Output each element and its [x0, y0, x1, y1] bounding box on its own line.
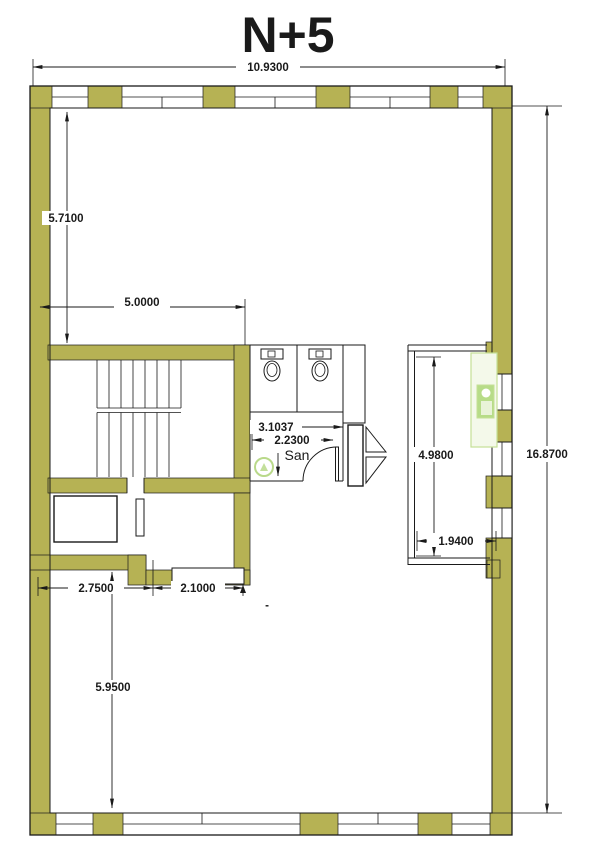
toilet-icon: [309, 349, 331, 381]
staircase: [97, 360, 181, 477]
dim-overall-height: 16.8700: [526, 449, 568, 461]
dim-lower-left-width: 2.7500: [78, 583, 113, 595]
door-leaf-panel: [136, 499, 144, 536]
floor-plan-page: N+5 10.9300 5.7100 5.0000 3.1037 2.2300 …: [0, 0, 607, 850]
stray-dash: -: [265, 600, 269, 612]
dim-upper-left-height: 5.7100: [48, 213, 83, 225]
duct-arrow-symbol: [348, 425, 386, 486]
dim-lower-mid-width: 2.1000: [180, 583, 215, 595]
dim-overall-width: 10.9300: [247, 62, 289, 74]
dim-stair-room-width: 5.0000: [124, 297, 159, 309]
dim-san-door-width: 2.2300: [274, 435, 309, 447]
up-arrow: [240, 585, 246, 593]
dim-lower-room-height: 5.9500: [95, 682, 130, 694]
dim-san-width: 3.1037: [258, 422, 293, 434]
door-jambs: [127, 478, 144, 493]
room-label-san: San: [285, 447, 310, 463]
floor-plan-canvas: N+5 10.9300 5.7100 5.0000 3.1037 2.2300 …: [0, 0, 607, 850]
kitchenette-icon: [471, 353, 497, 447]
floor-drain-mark: [260, 463, 268, 471]
sanitary-block: [250, 345, 386, 486]
toilet-icon: [261, 349, 283, 381]
dim-shaft-height: 4.9800: [418, 450, 453, 462]
elevator-shaft-box: [54, 496, 144, 542]
stair-room-walls: [48, 345, 250, 493]
page-title: N+5: [241, 7, 334, 63]
dim-shaft-width: 1.9400: [438, 536, 473, 548]
